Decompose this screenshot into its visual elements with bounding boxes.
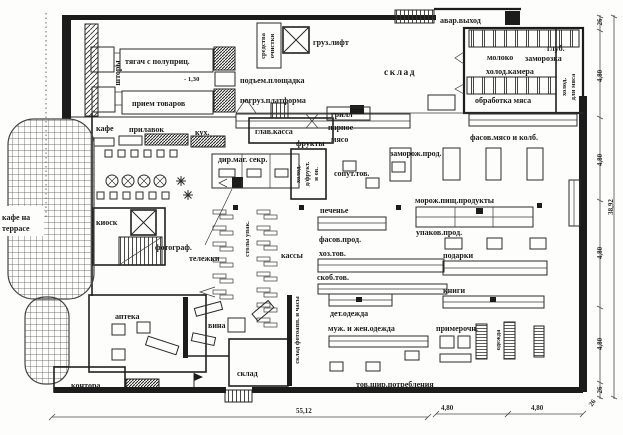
label-packaged-goods: упаков.прод. xyxy=(416,228,462,237)
stairs-icon xyxy=(271,103,288,118)
label-fruit-cold-3: и ов. xyxy=(313,167,320,181)
label-cold-chamber: холод.камера xyxy=(486,67,534,76)
label-cafe: кафе xyxy=(96,124,114,133)
photo-booth-icon xyxy=(232,177,243,188)
loading-dock: шторы тягач с полуприц. - 1,30 прием тов… xyxy=(62,15,436,119)
clothes-rack-icon xyxy=(534,326,544,357)
exit-door-icon xyxy=(505,11,520,25)
label-household: хоз.тов. xyxy=(319,249,346,258)
label-fitting-rooms: примерочн. xyxy=(436,324,478,333)
dim-right-2: 4,80 xyxy=(596,153,604,166)
label-cleaning-2: очистки xyxy=(269,34,276,59)
related-goods-islands: сопут.тов. xyxy=(334,161,405,188)
label-checkouts: кассы xyxy=(281,251,304,260)
dim-bottom-corner: 26 xyxy=(587,397,598,408)
dim-right-5: 26 xyxy=(596,386,604,394)
dim-right-0: 26 xyxy=(596,18,604,26)
label-main-cash: глав.касса xyxy=(255,127,293,136)
label-emergency-exit: авар.выход xyxy=(440,16,481,25)
label-gifts: подарки xyxy=(443,251,473,260)
label-clothes-rack: одежда xyxy=(495,329,502,350)
bottom-wall-right xyxy=(252,387,583,393)
label-packed-meat: фасов.мясо и колб. xyxy=(470,133,538,142)
label-level-mark: - 1,30 xyxy=(184,76,200,83)
plant-icon xyxy=(176,176,186,186)
door-swing-icon xyxy=(455,52,464,94)
cold-storage-block: молоко глуб. заморозка холод.камера обра… xyxy=(455,28,583,113)
supermarket-floor-plan: шторы тягач с полуприц. - 1,30 прием тов… xyxy=(0,0,623,435)
bottom-wall-left xyxy=(54,387,226,393)
label-adult-clothes: муж. и жен.одежда xyxy=(328,324,395,333)
label-kids-clothes: дет.одежда xyxy=(330,309,368,318)
dim-bottom-seg2: 4,80 xyxy=(531,404,544,412)
cargo-lift-icon xyxy=(283,27,309,53)
pharmacy-room: аптека xyxy=(89,295,206,372)
lift-shaft-icon xyxy=(131,210,156,235)
label-warehouse-top: склад xyxy=(384,68,416,78)
label-lift-platform: подъем.площадка xyxy=(240,76,304,85)
label-milk: молоко xyxy=(487,53,513,62)
label-fruit-cold-2: д/фрукт. xyxy=(304,161,311,186)
label-meat-cold-2: для мяса xyxy=(570,73,577,100)
label-meat-cold-1: холод. xyxy=(561,78,568,96)
label-packaged-food: фасов.прод. xyxy=(319,235,361,244)
label-fresh-meat-1: парное xyxy=(328,123,354,132)
label-terrace-1: кафе на xyxy=(2,213,30,222)
door-flag-icon xyxy=(194,373,203,381)
arrow-icon xyxy=(219,179,227,187)
label-camera-watch-storage: склад фотоапп. и часы xyxy=(294,296,301,364)
locker-row-icon xyxy=(467,77,556,94)
label-kiosk: киоск xyxy=(96,218,118,227)
dim-bottom-total: 55,12 xyxy=(296,407,312,415)
central-service-rooms: глав.касса дир.маг. секр. фрукты холод. … xyxy=(176,103,333,200)
label-wine: вина xyxy=(208,321,226,330)
terrace: кафе на террасе xyxy=(0,119,94,384)
dim-right-1: 4,80 xyxy=(596,69,604,82)
label-fruit-cold-1: холод. xyxy=(295,165,302,183)
table-icon xyxy=(106,175,118,187)
label-terrace-2: террасе xyxy=(2,224,30,233)
label-books: книги xyxy=(443,286,465,295)
cafe-area: кафе прилавок кух. xyxy=(92,113,225,296)
right-outer-wall xyxy=(579,96,587,392)
kiosk-block: киоск xyxy=(93,208,165,265)
label-related-goods: сопут.тов. xyxy=(334,169,369,178)
bottom-storeroom: склад склад фотоапп. и часы xyxy=(194,295,301,402)
label-fruits: фрукты xyxy=(296,139,325,148)
label-meat-processing: обработка мяса xyxy=(475,96,531,105)
label-cafe-counter: прилавок xyxy=(129,125,164,134)
floor-plan-drawing: шторы тягач с полуприц. - 1,30 прием тов… xyxy=(0,0,623,435)
sales-floor-shelving: печенье фасов.прод. хоз.тов. скоб.тов. м… xyxy=(317,180,580,389)
dim-right-total: 38,92 xyxy=(607,199,615,215)
label-hardware: скоб.тов. xyxy=(317,273,349,282)
table-icon xyxy=(138,175,150,187)
plant-icon xyxy=(183,190,193,200)
label-carts: тележки xyxy=(189,254,220,263)
label-packing-tables: столы упак. xyxy=(244,221,251,257)
table-icon xyxy=(122,175,134,187)
stairs-icon xyxy=(395,10,434,23)
dim-right-3: 4,80 xyxy=(596,246,604,259)
label-director: дир.маг. секр. xyxy=(218,155,268,164)
checkout-area: столы упак. кассы фотограф. тележки xyxy=(155,177,304,327)
clothes-rack-icon xyxy=(476,324,487,359)
entrance-steps-icon xyxy=(225,390,252,402)
label-frozen-food: морож.пищ.продукты xyxy=(415,196,495,205)
label-grill: грилл xyxy=(331,110,353,119)
label-truck-semitrailer: тягач с полуприц. xyxy=(125,57,190,66)
label-goods-reception: прием товаров xyxy=(132,99,186,108)
label-frozen: заморож.прод. xyxy=(390,149,441,158)
clothes-rack-icon xyxy=(504,322,515,359)
table-icon xyxy=(154,175,166,187)
label-warehouse-bottom: склад xyxy=(237,369,258,378)
label-pharmacy: аптека xyxy=(115,312,139,321)
dim-right-4: 4,80 xyxy=(596,337,604,350)
dim-bottom-seg1: 4,80 xyxy=(441,404,454,412)
label-cargo-lift: груз.лифт xyxy=(313,38,349,47)
label-cookies: печенье xyxy=(320,206,349,215)
label-cleaning-1: средства xyxy=(260,32,267,58)
